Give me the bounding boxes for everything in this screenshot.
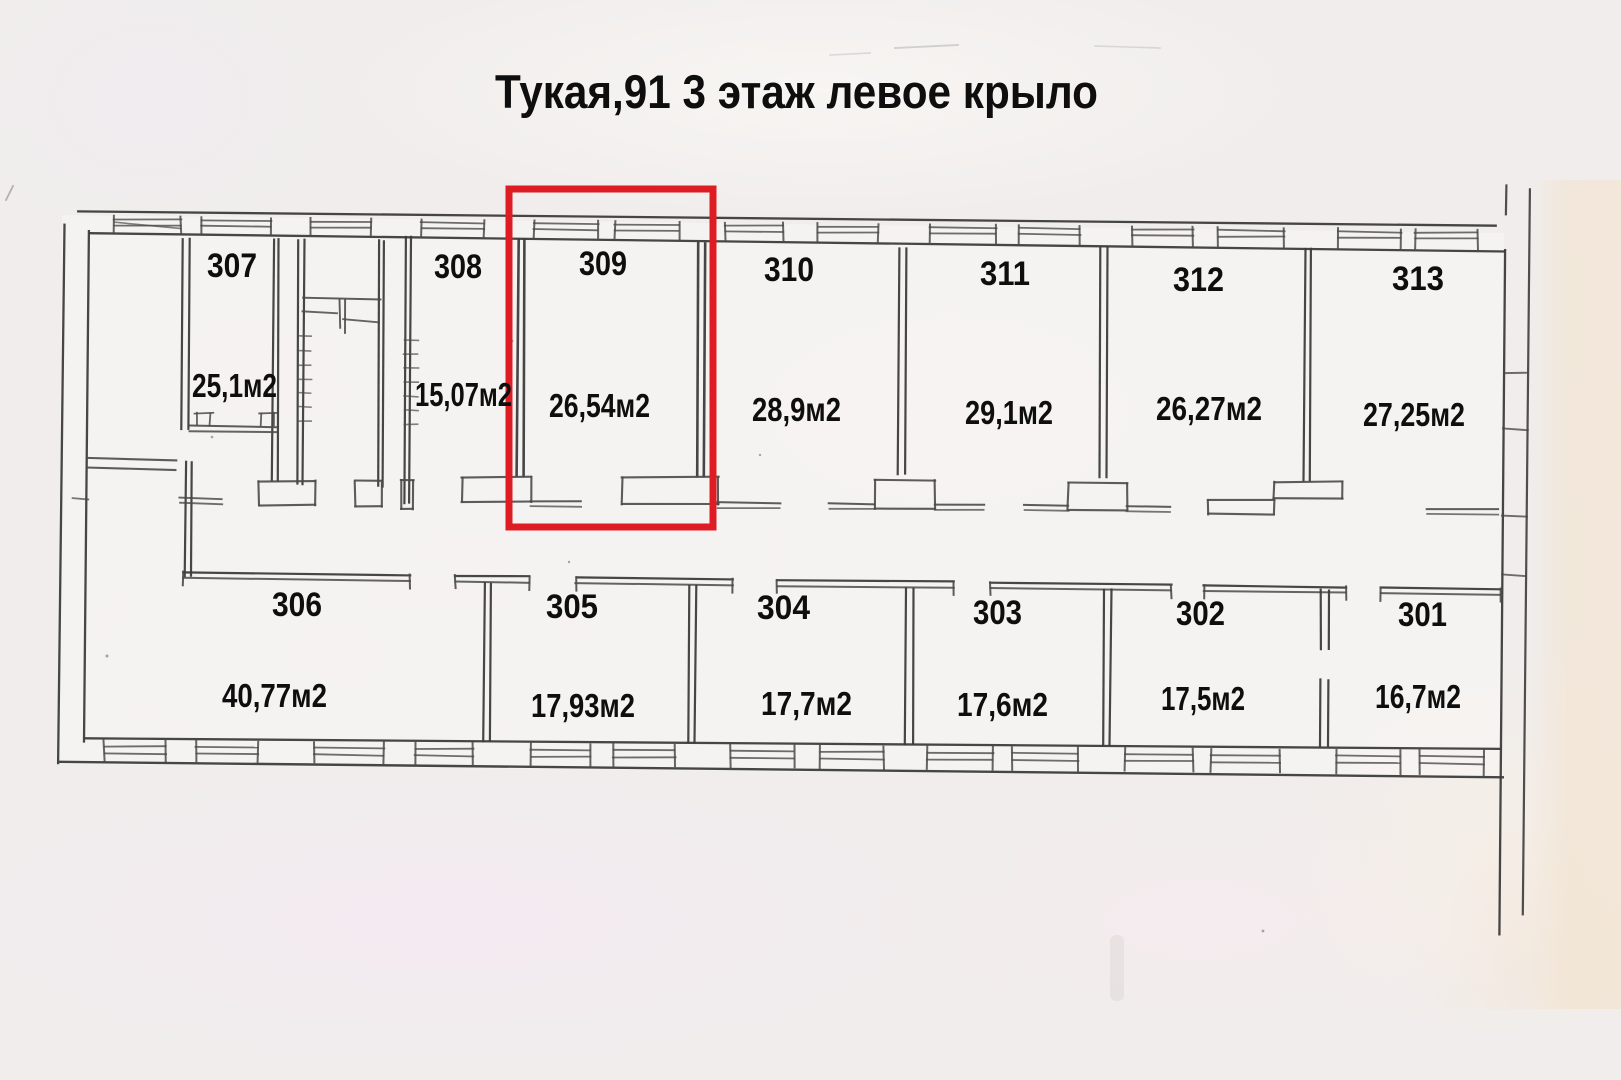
svg-text:301: 301: [1398, 596, 1447, 634]
svg-text:17,6м2: 17,6м2: [957, 686, 1048, 723]
svg-text:17,5м2: 17,5м2: [1161, 680, 1245, 717]
svg-text:302: 302: [1176, 595, 1225, 633]
svg-text:307: 307: [207, 247, 257, 285]
svg-text:310: 310: [764, 251, 814, 289]
svg-text:26,27м2: 26,27м2: [1156, 390, 1262, 427]
svg-text:306: 306: [272, 586, 322, 624]
svg-text:305: 305: [546, 588, 598, 626]
svg-text:312: 312: [1173, 261, 1224, 299]
svg-text:311: 311: [980, 255, 1030, 293]
svg-text:Тукая,91 3 этаж левое крыло: Тукая,91 3 этаж левое крыло: [495, 65, 1098, 118]
svg-text:15,07м2: 15,07м2: [415, 376, 512, 413]
svg-text:303: 303: [973, 594, 1022, 632]
svg-text:17,7м2: 17,7м2: [761, 685, 852, 722]
svg-text:16,7м2: 16,7м2: [1375, 678, 1461, 715]
svg-text:28,9м2: 28,9м2: [752, 391, 841, 428]
svg-text:27,25м2: 27,25м2: [1363, 396, 1465, 433]
svg-text:26,54м2: 26,54м2: [549, 387, 650, 424]
svg-text:25,1м2: 25,1м2: [192, 367, 277, 404]
svg-text:40,77м2: 40,77м2: [222, 677, 327, 714]
svg-text:313: 313: [1392, 260, 1444, 298]
svg-text:17,93м2: 17,93м2: [531, 687, 635, 724]
svg-text:29,1м2: 29,1м2: [965, 394, 1053, 431]
svg-text:309: 309: [579, 245, 627, 283]
svg-text:308: 308: [434, 248, 482, 286]
svg-text:304: 304: [757, 589, 810, 627]
